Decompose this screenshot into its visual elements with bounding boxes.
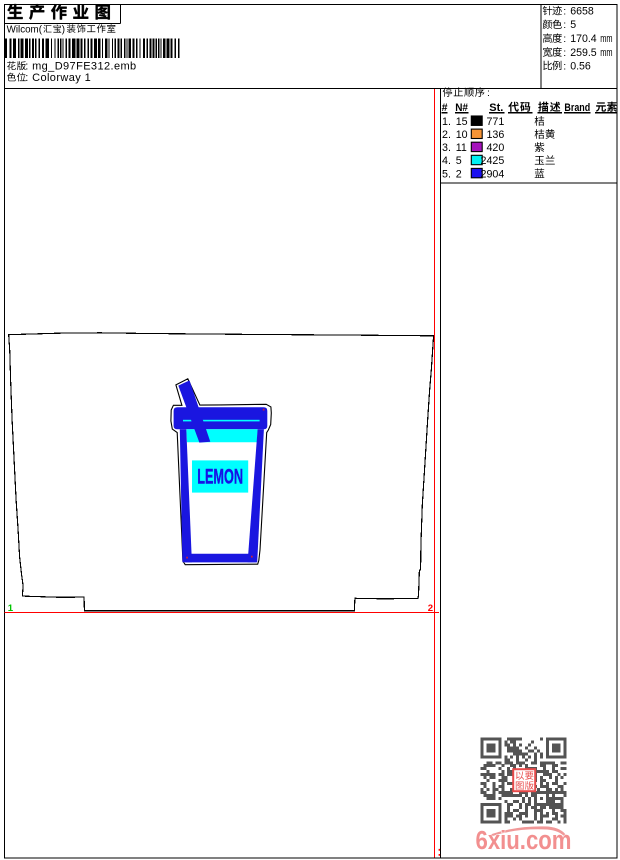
svg-text:2.: 2. (442, 129, 451, 141)
svg-text:2: 2 (428, 603, 433, 614)
svg-text::: : (563, 33, 566, 45)
svg-text:mm: mm (600, 47, 612, 59)
svg-text:1.: 1. (442, 116, 451, 128)
svg-text:259.5: 259.5 (570, 47, 597, 59)
svg-text:St.: St. (489, 102, 503, 114)
svg-text:136: 136 (486, 129, 504, 141)
svg-text:5.: 5. (442, 168, 451, 180)
svg-text:6658: 6658 (570, 5, 594, 17)
svg-text:420: 420 (486, 142, 504, 154)
svg-text:3.: 3. (442, 142, 451, 154)
svg-text:0.56: 0.56 (570, 60, 591, 72)
svg-text:Wilcom(: Wilcom( (7, 24, 43, 35)
svg-text:11: 11 (456, 142, 467, 154)
svg-text::: : (487, 87, 490, 99)
svg-text::: : (563, 47, 566, 59)
svg-text::: : (563, 5, 566, 17)
svg-text:4.: 4. (442, 155, 451, 167)
svg-text:170.4: 170.4 (570, 33, 597, 45)
svg-text:771: 771 (486, 116, 504, 128)
svg-text:): ) (62, 24, 65, 35)
svg-text:1: 1 (8, 603, 14, 614)
svg-text:6xiu.com: 6xiu.com (476, 827, 572, 855)
svg-text:N#: N# (455, 102, 468, 114)
svg-text:2425: 2425 (481, 155, 505, 167)
svg-text:LEMON: LEMON (197, 465, 243, 488)
svg-text:#: # (442, 102, 448, 114)
svg-text:Brand: Brand (564, 102, 590, 114)
svg-text:: Colorway 1: : Colorway 1 (25, 72, 91, 84)
svg-text:2: 2 (456, 168, 462, 180)
svg-text::: : (563, 60, 566, 72)
svg-text:: mg_D97FE312.emb: : mg_D97FE312.emb (25, 60, 136, 72)
svg-text:15: 15 (456, 116, 468, 128)
svg-text:10: 10 (456, 129, 468, 141)
svg-text:2904: 2904 (481, 168, 505, 180)
svg-text:5: 5 (456, 155, 462, 167)
svg-text:mm: mm (600, 33, 612, 45)
svg-text:5: 5 (570, 19, 576, 31)
svg-text::: : (563, 19, 566, 31)
